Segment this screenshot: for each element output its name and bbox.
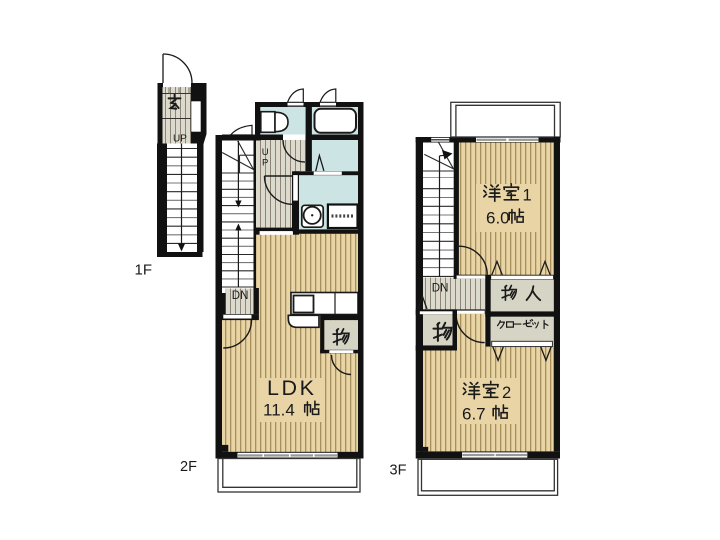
svg-text:2F: 2F <box>180 459 197 475</box>
svg-text:11.4: 11.4 <box>263 401 295 420</box>
svg-text:3F: 3F <box>390 463 407 479</box>
svg-text:P: P <box>262 158 268 169</box>
svg-text:DN: DN <box>432 282 449 294</box>
svg-text:6.7: 6.7 <box>462 405 486 424</box>
svg-text:UP: UP <box>173 134 187 145</box>
svg-text:LDK: LDK <box>267 376 317 400</box>
svg-text:1: 1 <box>523 187 532 205</box>
svg-text:6.0: 6.0 <box>486 209 510 228</box>
svg-text:2: 2 <box>502 384 511 402</box>
svg-text:DN: DN <box>232 290 249 302</box>
svg-text:U: U <box>262 147 269 158</box>
svg-text:1F: 1F <box>135 262 153 279</box>
